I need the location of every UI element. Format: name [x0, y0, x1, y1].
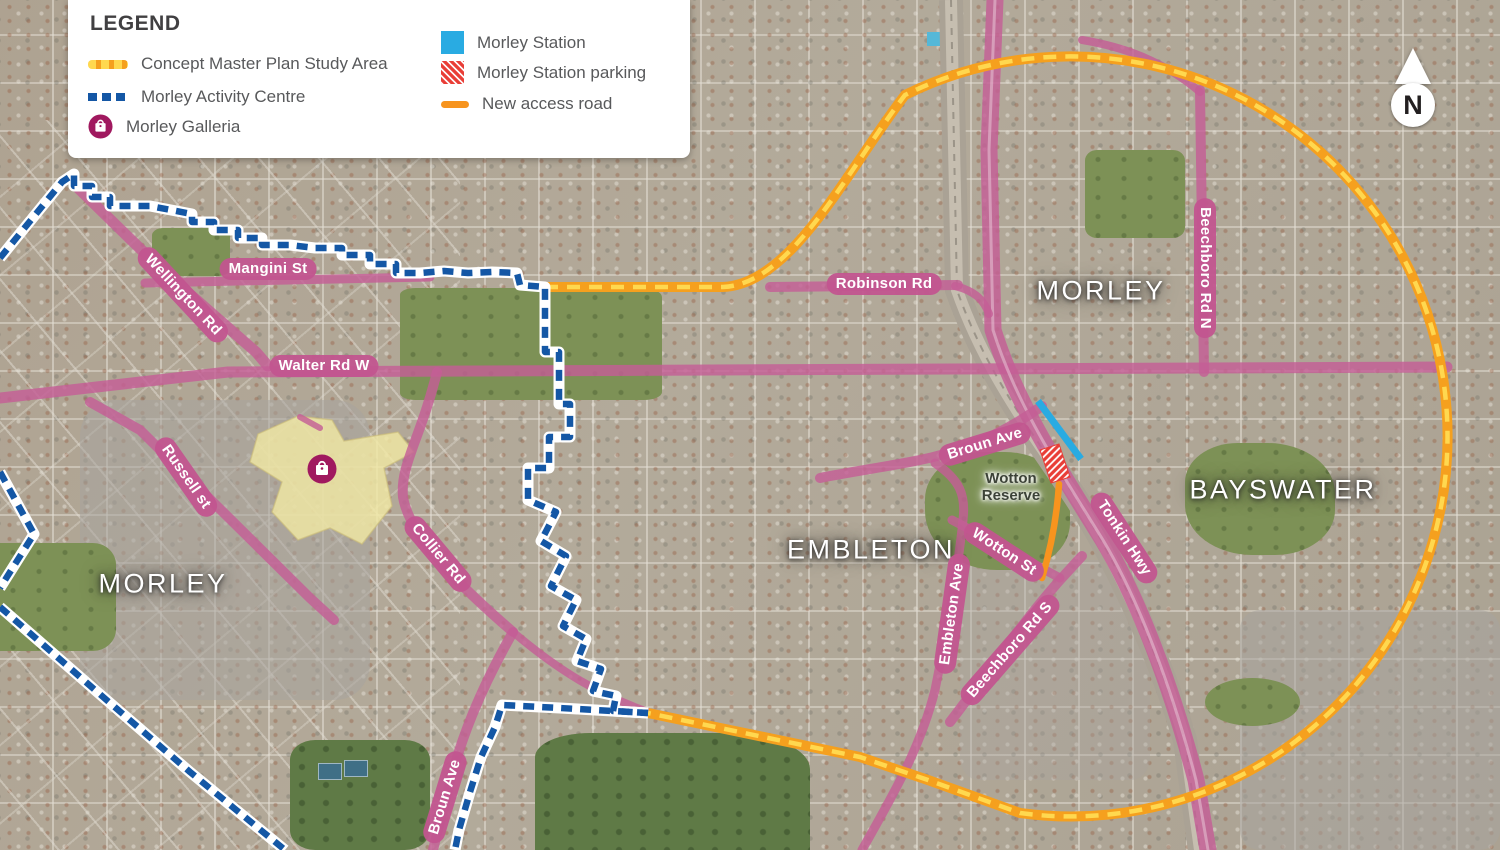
place-label-wotton-reserve: Wotton Reserve: [982, 470, 1040, 505]
legend-item-label: Morley Station: [477, 33, 586, 53]
galleria-marker: [308, 455, 337, 484]
legend-item-galleria: Morley Galleria: [88, 114, 240, 139]
legend-title: LEGEND: [90, 12, 181, 36]
north-arrow-triangle-icon: [1395, 48, 1431, 84]
legend-item-label: Morley Station parking: [477, 63, 646, 83]
road-collier-rd: [403, 372, 513, 632]
station-swatch-icon: [441, 31, 464, 54]
activity-centre-swatch-icon: [88, 93, 128, 101]
new-access-road: [1042, 484, 1059, 578]
road-walter-rd-w: [0, 367, 1447, 398]
suburb-label-morley-east: MORLEY: [1036, 276, 1165, 307]
road-label-robinson-rd: Robinson Rd: [827, 273, 942, 295]
wotton-reserve-line2: Reserve: [982, 487, 1040, 504]
north-label: N: [1403, 90, 1423, 121]
north-arrow: N: [1378, 48, 1448, 133]
wotton-reserve-line1: Wotton: [982, 470, 1040, 487]
station-parking-area: [1040, 444, 1070, 483]
legend-item-study-area: Concept Master Plan Study Area: [88, 54, 388, 74]
map-viewport: MORLEY MORLEY EMBLETON BAYSWATER Wotton …: [0, 0, 1500, 850]
legend-item-label: New access road: [482, 94, 612, 114]
road-label-mangini-st: Mangini St: [220, 258, 317, 280]
access-road-swatch-icon: [441, 101, 469, 108]
north-arrow-circle: N: [1391, 83, 1435, 127]
road-label-walter-rd-w: Walter Rd W: [269, 355, 378, 377]
legend-item-access-road: New access road: [441, 94, 612, 114]
legend-item-station-parking: Morley Station parking: [441, 61, 646, 84]
study-area-swatch-icon: [88, 60, 128, 69]
legend-item-label: Concept Master Plan Study Area: [141, 54, 388, 74]
galleria-building-footprint: [250, 416, 414, 544]
parking-swatch-icon: [441, 61, 464, 84]
shopping-bag-icon: [88, 114, 113, 139]
legend-item-activity-centre: Morley Activity Centre: [88, 87, 305, 107]
legend-item-label: Morley Galleria: [126, 117, 240, 137]
legend-item-label: Morley Activity Centre: [141, 87, 305, 107]
suburb-label-bayswater: BAYSWATER: [1189, 475, 1376, 506]
suburb-label-morley-west: MORLEY: [98, 569, 227, 600]
legend-item-station: Morley Station: [441, 31, 586, 54]
legend-panel: LEGEND Concept Master Plan Study Area Mo…: [68, 0, 690, 158]
suburb-label-embleton: EMBLETON: [787, 535, 955, 566]
road-label-beechboro-rd-n: Beechboro Rd N: [1194, 198, 1216, 338]
